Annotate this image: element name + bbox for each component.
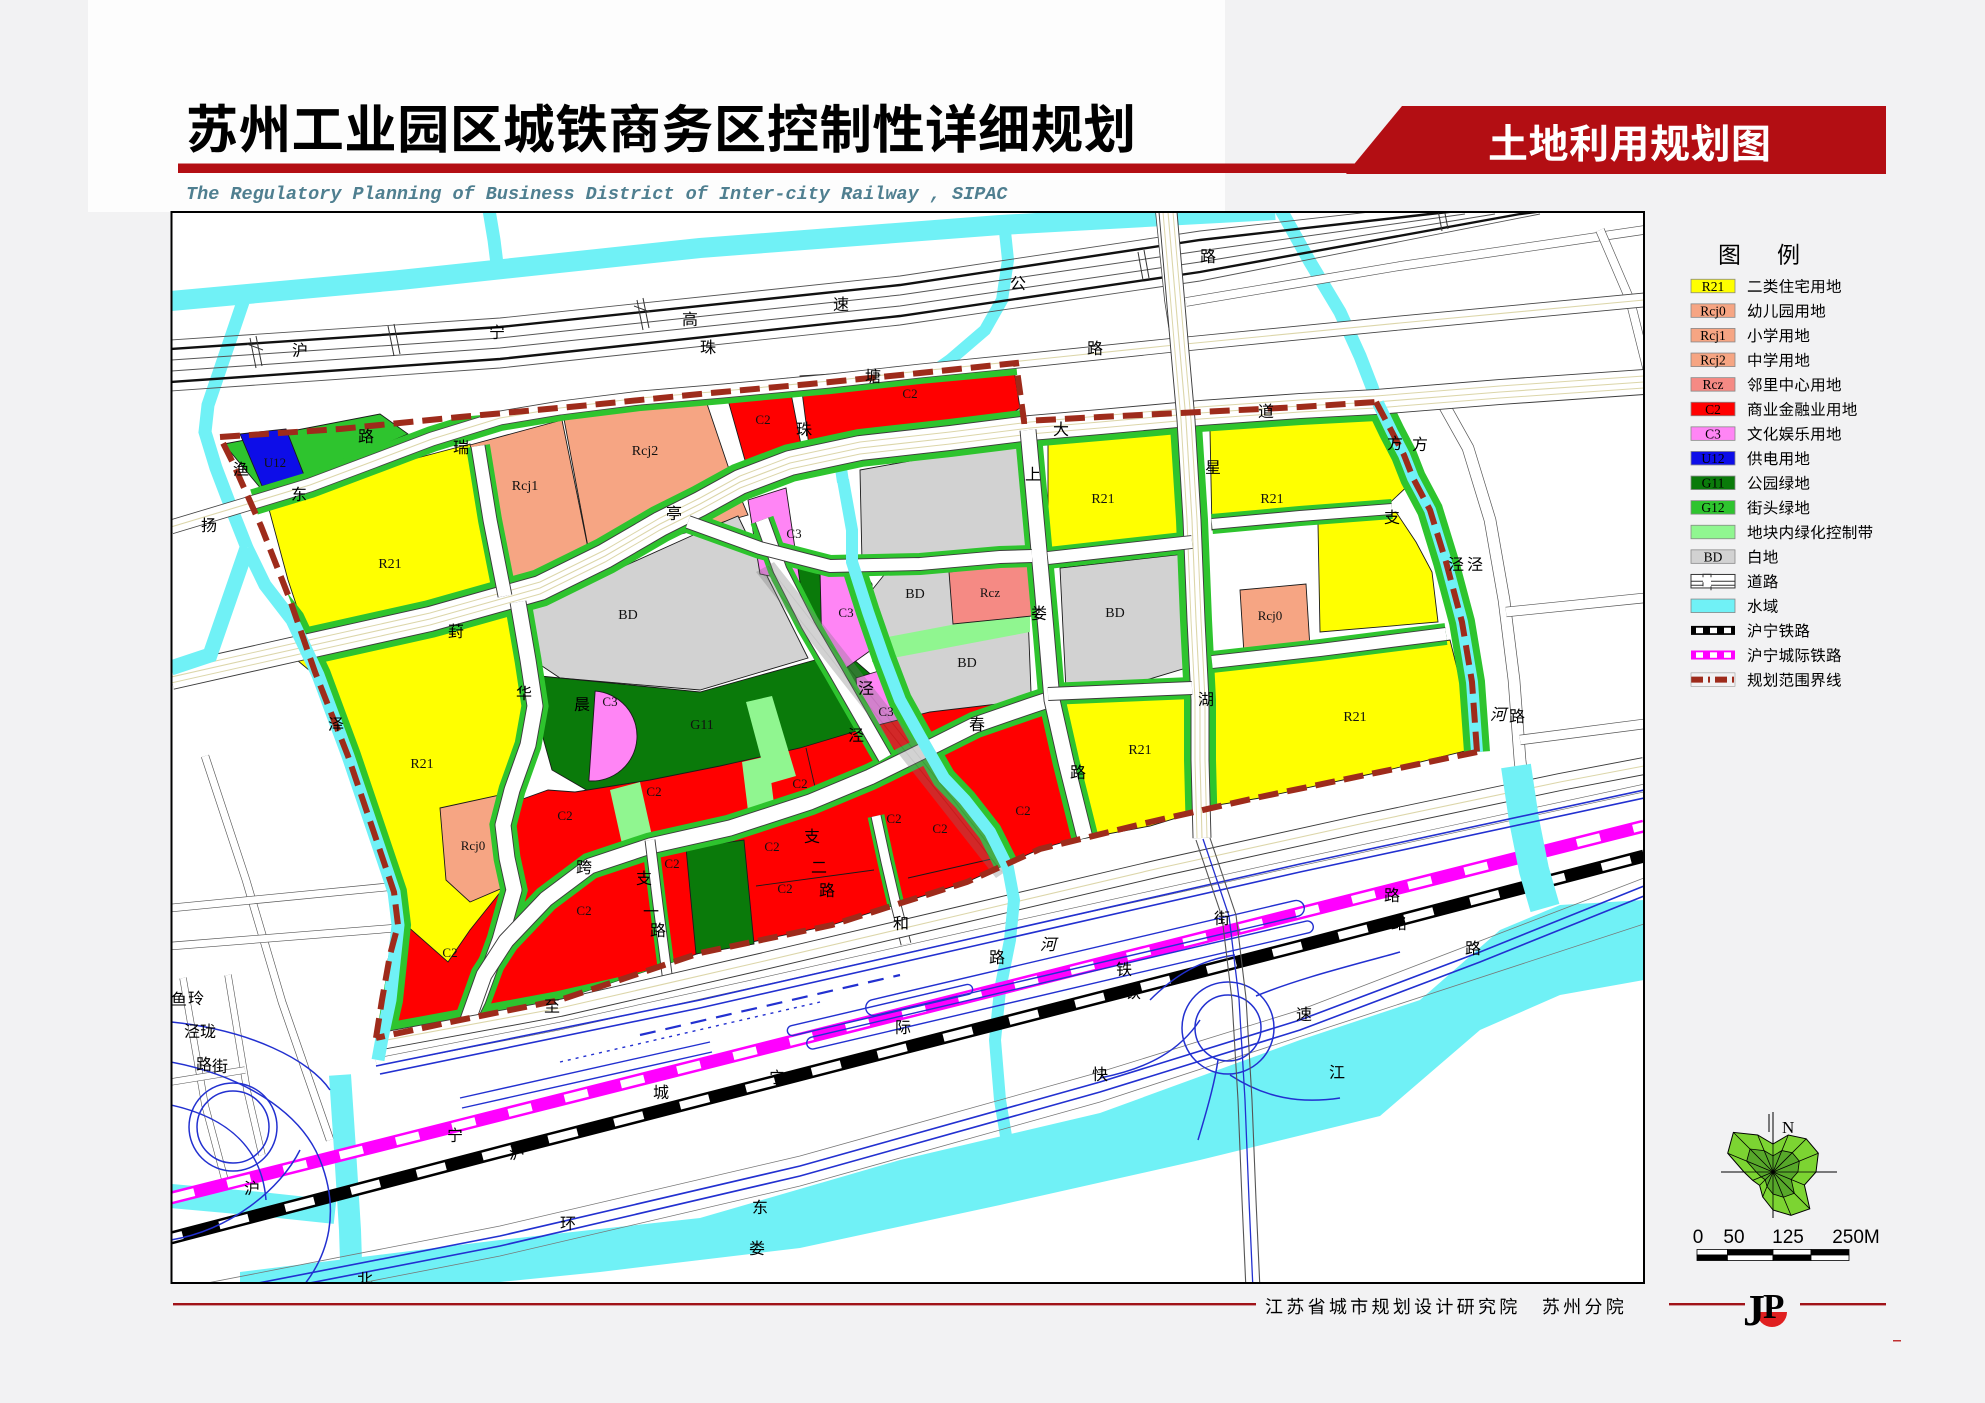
svg-text:C2: C2: [557, 808, 572, 823]
svg-text:G12: G12: [1701, 500, 1724, 515]
svg-text:C2: C2: [755, 412, 770, 427]
svg-text:U12: U12: [264, 455, 286, 470]
svg-text:C3: C3: [878, 704, 893, 719]
svg-text:C2: C2: [1705, 402, 1721, 417]
svg-text:N: N: [1782, 1118, 1794, 1137]
svg-text:Rcj0: Rcj0: [1700, 303, 1726, 318]
svg-text:G11: G11: [690, 718, 714, 733]
svg-text:C3: C3: [838, 605, 853, 620]
svg-text:C2: C2: [886, 811, 901, 826]
svg-text:R21: R21: [1343, 710, 1366, 725]
svg-text:C2: C2: [902, 386, 917, 401]
svg-text:C3: C3: [1705, 426, 1721, 441]
svg-text:Rcz: Rcz: [1703, 377, 1724, 392]
svg-text:Rcj2: Rcj2: [632, 444, 658, 459]
svg-text:BD: BD: [1105, 606, 1124, 621]
svg-text:Rcj1: Rcj1: [512, 479, 538, 494]
svg-text:125: 125: [1772, 1227, 1804, 1248]
svg-text:R21: R21: [1091, 492, 1114, 507]
svg-text:G11: G11: [1702, 476, 1725, 491]
svg-text:P: P: [1763, 1287, 1784, 1326]
svg-text:U12: U12: [1701, 451, 1724, 466]
svg-text:The Regulatory Planning of Bus: The Regulatory Planning of Business Dist…: [186, 184, 1008, 205]
svg-text:BD: BD: [957, 656, 976, 671]
svg-text:BD: BD: [1704, 549, 1723, 564]
svg-text:C2: C2: [777, 881, 792, 896]
svg-text:C2: C2: [1015, 803, 1030, 818]
svg-text:Rcj0: Rcj0: [461, 838, 486, 853]
svg-text:0: 0: [1693, 1227, 1704, 1248]
svg-text:C3: C3: [602, 694, 617, 709]
svg-text:Rcj1: Rcj1: [1700, 328, 1726, 343]
svg-text:Rcj2: Rcj2: [1700, 353, 1726, 368]
svg-text:C2: C2: [764, 839, 779, 854]
svg-text:R21: R21: [378, 557, 401, 572]
svg-text:C2: C2: [442, 945, 457, 960]
svg-text:C2: C2: [576, 903, 591, 918]
svg-text:R21: R21: [1702, 279, 1725, 294]
svg-text:C2: C2: [932, 821, 947, 836]
svg-text:R21: R21: [1128, 743, 1151, 758]
svg-text:C2: C2: [664, 856, 679, 871]
svg-text:Rcj0: Rcj0: [1258, 608, 1283, 623]
svg-text:C2: C2: [646, 784, 661, 799]
svg-text:50: 50: [1723, 1227, 1744, 1248]
svg-text:Rcz: Rcz: [980, 585, 1000, 600]
svg-text:R21: R21: [410, 757, 433, 772]
svg-text:BD: BD: [905, 587, 924, 602]
svg-text:C2: C2: [792, 776, 807, 791]
svg-text:R21: R21: [1260, 492, 1283, 507]
svg-text:J: J: [1743, 1286, 1765, 1335]
svg-text:BD: BD: [618, 608, 637, 623]
svg-text:250M: 250M: [1832, 1227, 1880, 1248]
svg-text:C3: C3: [786, 526, 801, 541]
